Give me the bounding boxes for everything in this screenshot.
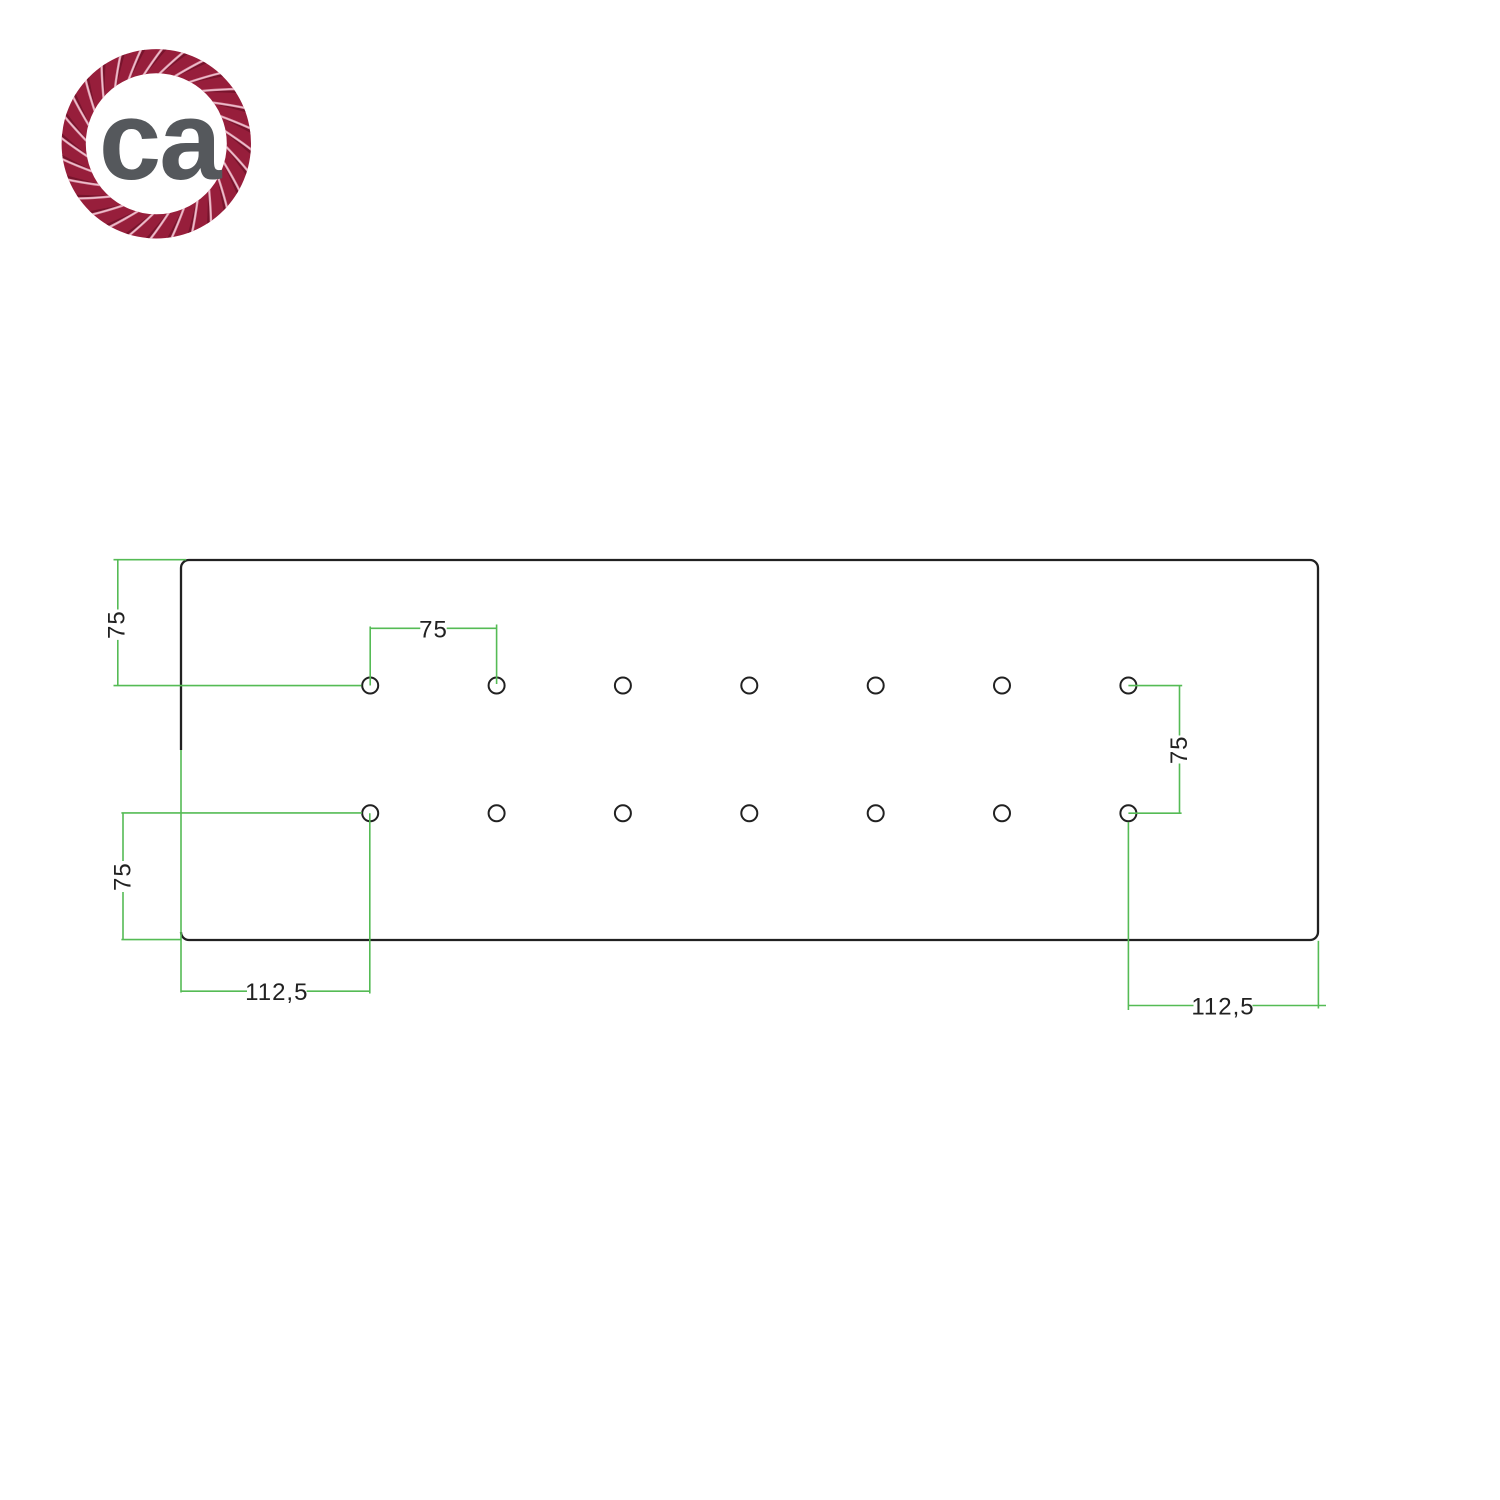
svg-text:75: 75: [1166, 735, 1193, 764]
svg-text:75: 75: [419, 616, 448, 643]
svg-text:ca: ca: [99, 78, 222, 203]
svg-text:112,5: 112,5: [245, 979, 308, 1006]
svg-text:75: 75: [110, 862, 137, 891]
svg-text:75: 75: [104, 610, 131, 639]
svg-text:112,5: 112,5: [1191, 994, 1254, 1021]
